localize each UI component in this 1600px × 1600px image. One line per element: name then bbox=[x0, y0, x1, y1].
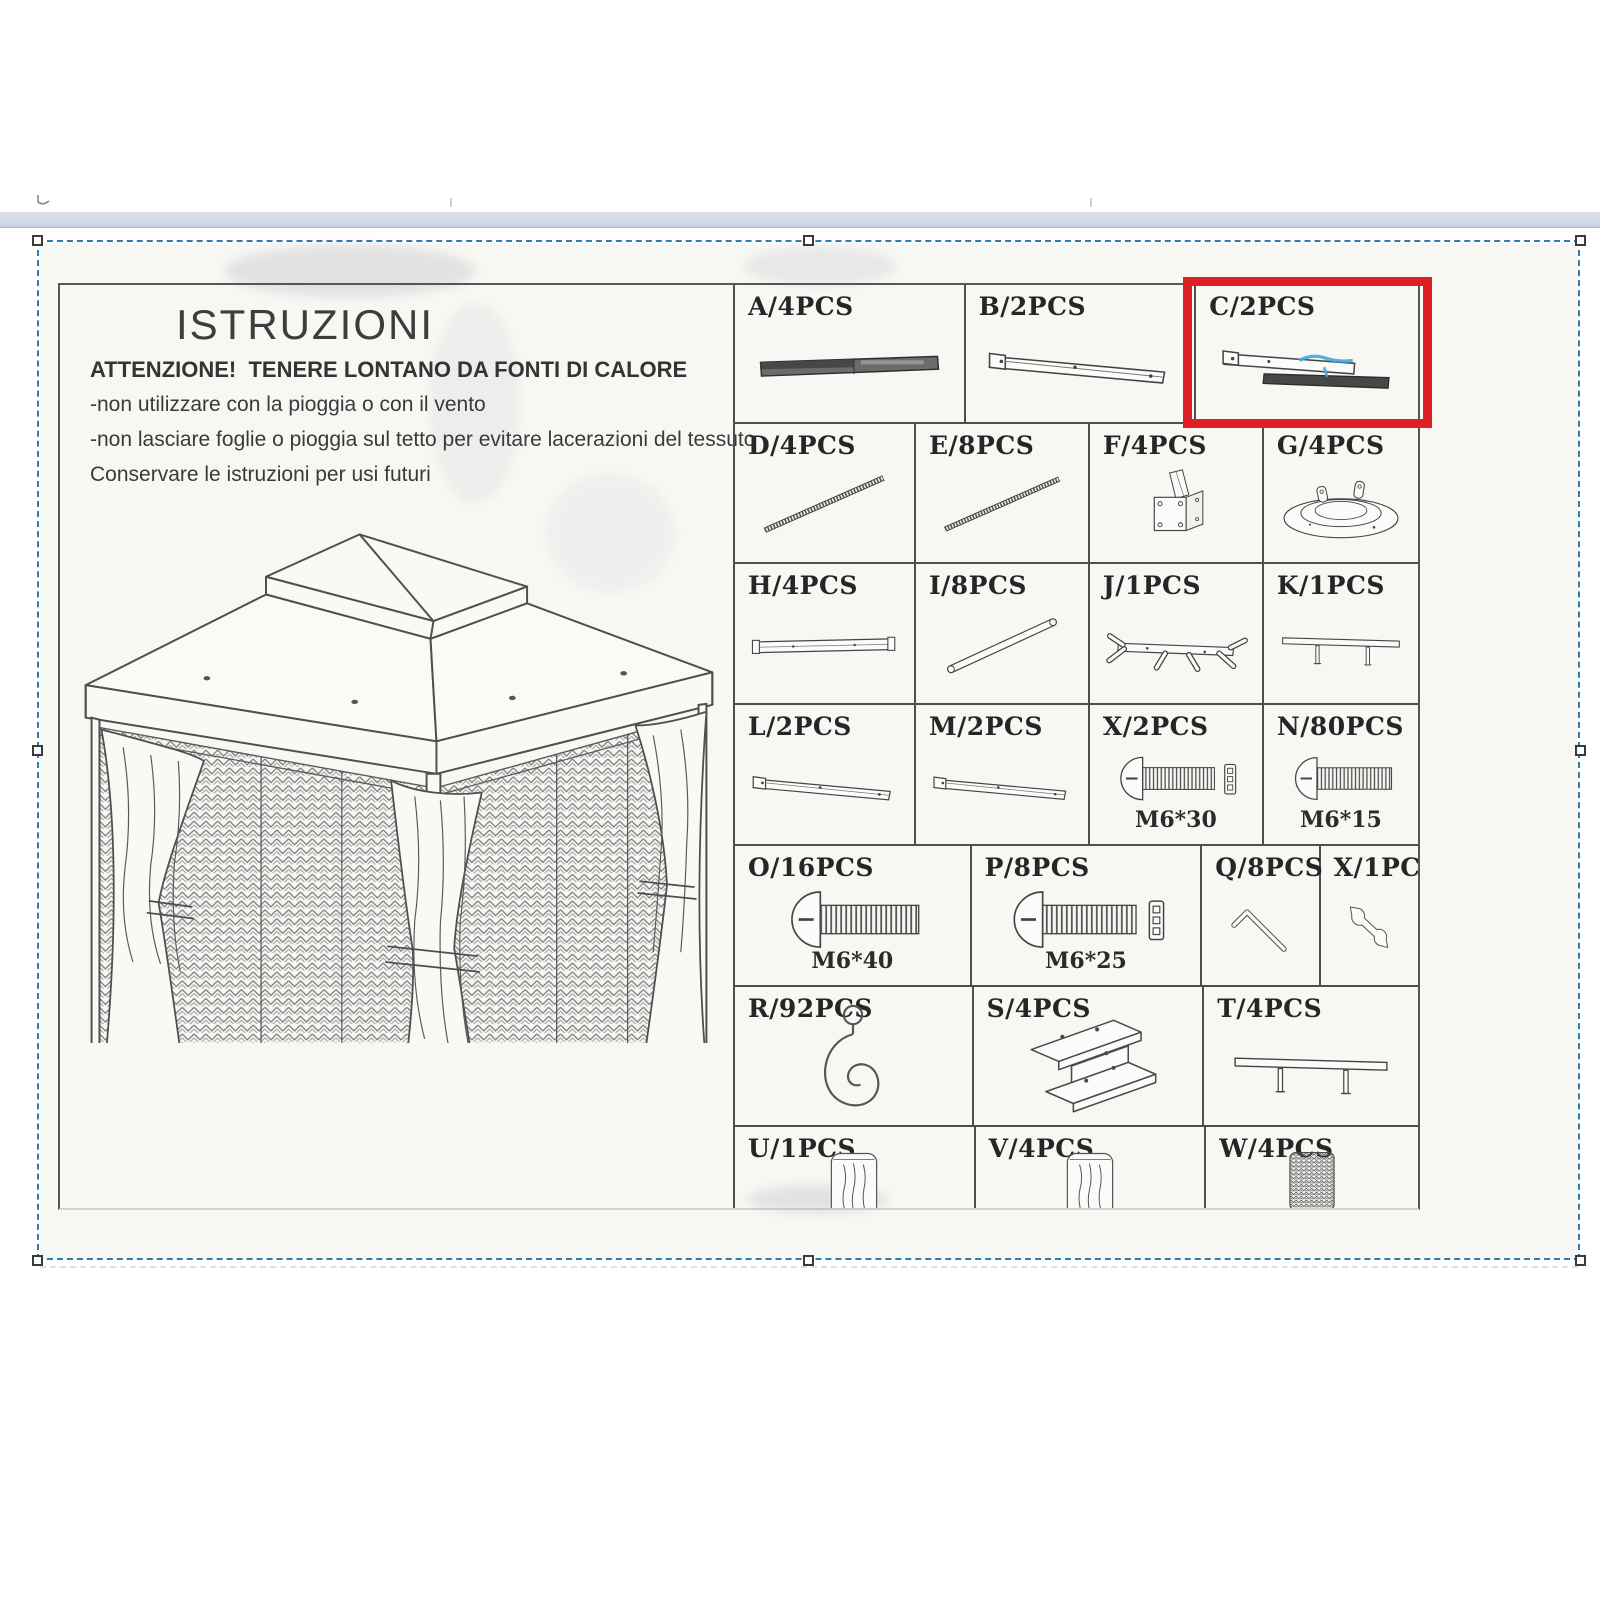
page-bottom-edge bbox=[40, 1266, 1578, 1268]
scan-corner-mark bbox=[36, 192, 52, 208]
selection-handle-bottom-left[interactable] bbox=[32, 1255, 43, 1266]
scan-speck bbox=[1090, 198, 1092, 207]
selection-handle-bottom-center[interactable] bbox=[803, 1255, 814, 1266]
selection-handle-top-center[interactable] bbox=[803, 235, 814, 246]
window-edge-bar bbox=[0, 212, 1600, 228]
selection-handle-bottom-right[interactable] bbox=[1575, 1255, 1586, 1266]
selection-handle-middle-left[interactable] bbox=[32, 745, 43, 756]
selection-handle-top-right[interactable] bbox=[1575, 235, 1586, 246]
screenshot-root: ISTRUZIONI ATTENZIONE! TENERE LONTANO DA… bbox=[0, 0, 1600, 1600]
selection-handle-top-left[interactable] bbox=[32, 235, 43, 246]
selection-handle-middle-right[interactable] bbox=[1575, 745, 1586, 756]
highlight-box-part-c bbox=[1183, 277, 1432, 428]
scan-speck bbox=[450, 198, 452, 207]
